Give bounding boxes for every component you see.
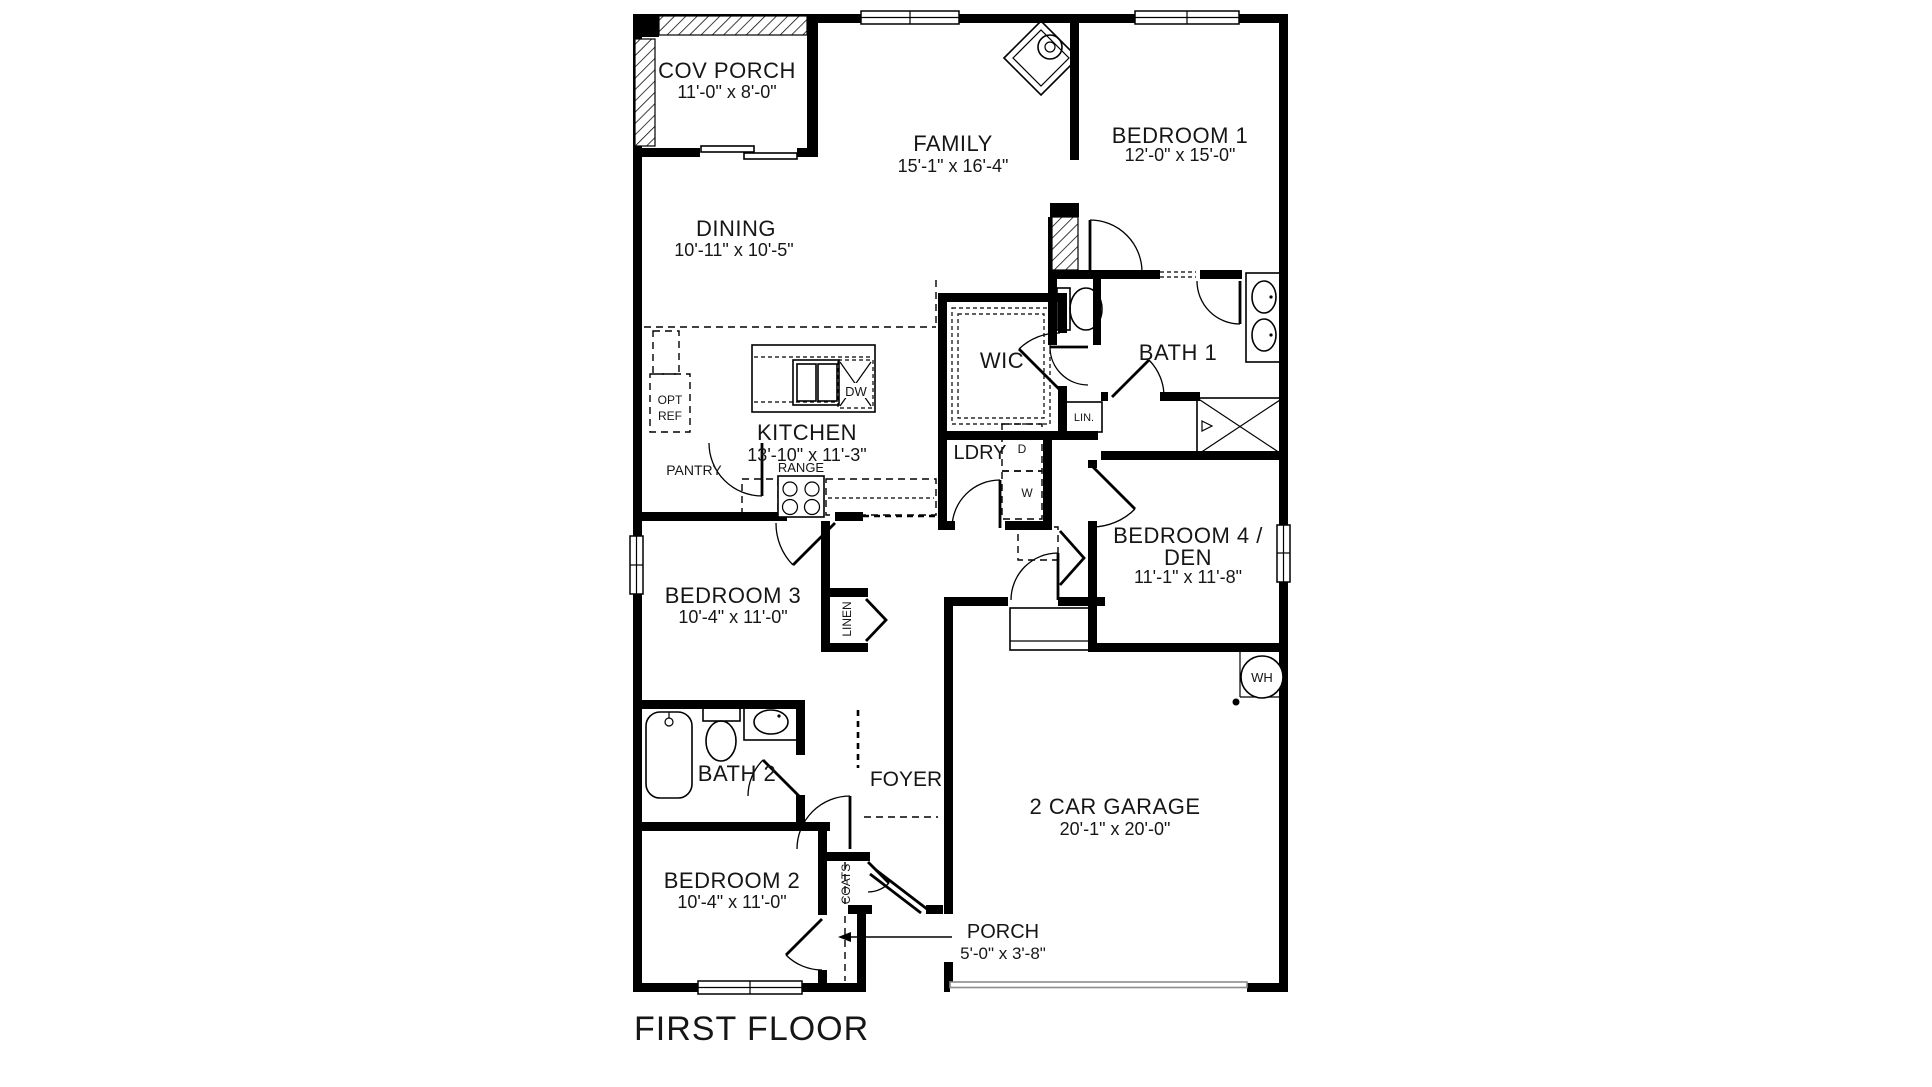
family-hatch-column — [1052, 217, 1078, 270]
room-label-dining: DINING — [696, 216, 776, 241]
cased-opening — [1160, 270, 1196, 279]
room-label-bath2: BATH 2 — [698, 761, 776, 786]
room-label-garage: 2 CAR GARAGE — [1029, 794, 1200, 819]
label-pantry: PANTRY — [666, 462, 722, 478]
plan-title: FIRST FLOOR — [634, 1010, 869, 1048]
room-label-wic: WIC — [980, 348, 1024, 373]
window-bedroom3 — [630, 536, 643, 594]
room-dims-garage: 20'-1" x 20'-0" — [1060, 819, 1171, 839]
porch-hatch-top — [659, 16, 807, 35]
room-dims-bedroom4: 11'-1" x 11'-8" — [1134, 567, 1242, 587]
room-label-bedroom3: BEDROOM 3 — [665, 583, 802, 608]
window-bedroom1 — [1135, 11, 1239, 24]
label-opt: OPT — [658, 393, 683, 407]
room-dims-porch: 5'-0" x 3'-8" — [960, 944, 1046, 963]
room-label-cov-porch: COV PORCH — [658, 58, 796, 83]
room-label-bedroom2: BEDROOM 2 — [664, 868, 801, 893]
room-dims-bedroom2: 10'-4" x 11'-0" — [677, 892, 786, 912]
room-label-porch: PORCH — [967, 921, 1039, 943]
window-bedroom4 — [1277, 525, 1290, 582]
label-washer: W — [1021, 486, 1033, 500]
window-bedroom2 — [698, 981, 802, 994]
room-dims-cov-porch: 11'-0" x 8'-0" — [677, 82, 776, 102]
room-dims-bedroom3: 10'-4" x 11'-0" — [678, 607, 787, 627]
porch-opening — [866, 983, 944, 992]
room-label-bath1: BATH 1 — [1139, 340, 1217, 365]
range-cooktop — [778, 476, 824, 517]
room-dims-dining: 10'-11" x 10'-5" — [674, 240, 793, 260]
label-linen: LINEN — [840, 601, 854, 636]
room-label-foyer: FOYER — [870, 768, 942, 791]
porch-hatch-left — [635, 39, 655, 146]
floor-plan: COV PORCH 11'-0" x 8'-0" FAMILY 15'-1" x… — [0, 0, 1932, 1087]
window-family — [861, 11, 959, 24]
floor-plan-canvas: COV PORCH 11'-0" x 8'-0" FAMILY 15'-1" x… — [0, 0, 1932, 1087]
room-label-family: FAMILY — [913, 131, 993, 156]
room-label-ldry: LDRY — [954, 442, 1007, 464]
room-dims-family: 15'-1" x 16'-4" — [898, 156, 1009, 176]
label-range: RANGE — [778, 460, 825, 475]
label-ref: REF — [658, 409, 682, 423]
label-wh: WH — [1251, 670, 1273, 685]
garage-door — [950, 982, 1247, 992]
label-dryer: D — [1018, 442, 1027, 456]
room-dims-bedroom1: 12'-0" x 15'-0" — [1125, 145, 1236, 165]
label-lin: LIN. — [1074, 412, 1094, 424]
label-coats: COATS — [839, 864, 853, 904]
room-label-kitchen: KITCHEN — [757, 420, 857, 445]
label-dw: DW — [845, 384, 867, 399]
